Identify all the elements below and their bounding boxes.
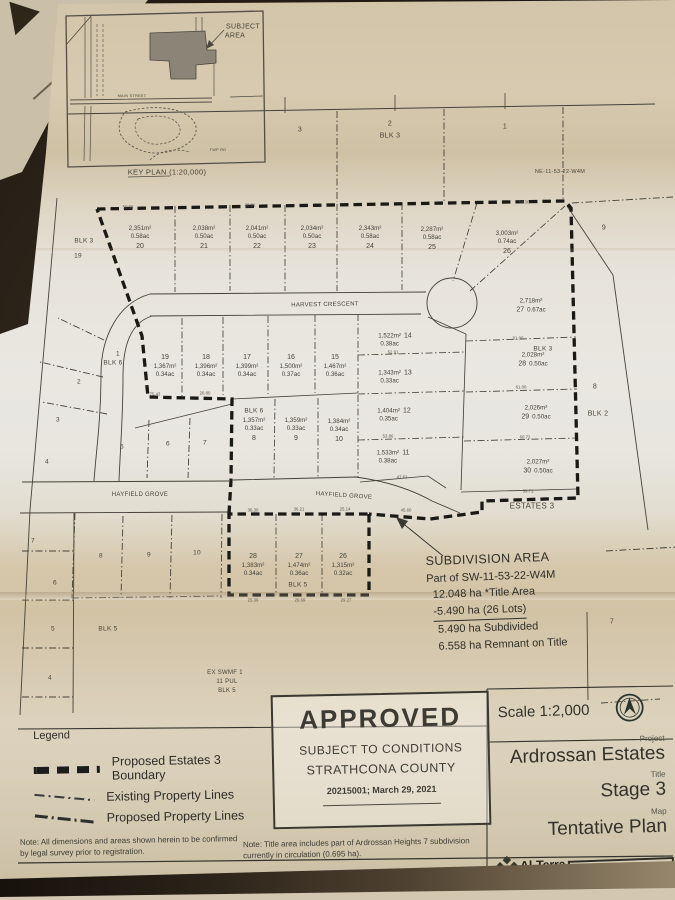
stage-title: Stage 3 [600, 779, 666, 803]
lot-label: 17 1,399m² 0.34ac [236, 353, 259, 379]
map-text: 6 [53, 580, 57, 587]
proposed-lot-lines [175, 203, 578, 595]
lot-label: 26 1,315m² 0.32ac [332, 552, 355, 578]
lot-acres: 0.34ac [244, 570, 263, 578]
lot-acres: 0.58ac [361, 233, 380, 241]
map-label: Map [651, 807, 667, 816]
map-text: MAIN STREET [118, 94, 147, 98]
lot-label: 15 1,467m² 0.36ac [324, 353, 347, 379]
lot-number: 15 [331, 353, 339, 362]
map-text: 3 [298, 127, 302, 134]
legend-title: Legend [33, 726, 263, 742]
map-text: BLK 6 [244, 408, 263, 415]
lot-acres: 0.50ac [195, 233, 214, 241]
lot-acres: 0.50ac [529, 360, 548, 368]
lot-acres: 0.67ac [527, 306, 546, 314]
project-name: Ardrossan Estates [509, 743, 665, 769]
survey-note: Note: All dimensions and areas shown her… [20, 834, 240, 859]
lot-acres: 0.38ac [377, 458, 400, 466]
proposed-boundary-line [97, 201, 578, 595]
lot-label: 27 2,718m² 0.67ac [516, 297, 545, 314]
lot-acres: 0.33ac [245, 425, 264, 433]
dimension-label: 45.60 [401, 508, 412, 513]
lot-area: 1,474m² [288, 562, 311, 570]
map-text: 4 [45, 459, 49, 466]
map-text: AREA [225, 33, 245, 40]
leader-arrow [396, 517, 443, 556]
lot-area: 2,027m² [523, 458, 552, 466]
lot-number: 9 [294, 434, 298, 443]
map-text: 8 [99, 553, 103, 560]
dimension-label: 36.21 [294, 507, 305, 512]
map-text: BLK 5 [288, 582, 307, 589]
dimension-label: 36.30 [248, 508, 259, 513]
lot-acres: 0.34ac [330, 426, 349, 434]
key-plan-linework [66, 11, 265, 177]
north-arrow-icon [613, 691, 646, 724]
map-text: 8 [593, 384, 597, 391]
lot-area: 2,287m² [421, 226, 444, 234]
dimension-label: 59.71 [523, 489, 534, 494]
lot-area: 2,028m² [518, 351, 547, 359]
subdivision-area-note: SUBDIVISION AREA Part of SW-11-53-22-W4M… [425, 544, 666, 655]
lot-area: 1,357m² [243, 417, 266, 425]
dimension-label: 52.91 [388, 350, 399, 355]
lot-number: 11 [402, 448, 409, 457]
lot-label: 28 2,028m² 0.50ac [518, 351, 547, 368]
lot-acres: 0.50ac [303, 233, 322, 241]
dimension-label: 61.00 [513, 336, 524, 341]
stamp-county-text: STRATHCONA COUNTY [306, 760, 456, 777]
lot-acres: 0.34ac [197, 371, 216, 379]
lot-acres: 0.34ac [156, 371, 175, 379]
dimension-label: 47.62 [397, 475, 408, 480]
lot-acres: 0.38ac [378, 341, 401, 349]
legend-item: Proposed Property Lines [35, 808, 265, 826]
lot-area: 2,038m² [193, 225, 216, 233]
lot-area: 3,003m² [496, 230, 519, 238]
map-text: 1 [116, 351, 120, 358]
lot-acres: 0.35ac [377, 416, 400, 424]
lot-acres: 0.32ac [334, 570, 353, 578]
map-text: 19 [74, 253, 82, 260]
legend-items: Proposed Estates 3 Boundary Existing Pro… [34, 752, 265, 826]
map-text: 5 [51, 626, 55, 633]
lot-label: 29 2,026m² 0.50ac [521, 404, 550, 421]
lot-number: 27 [295, 552, 303, 561]
legend-line-symbol [34, 794, 94, 801]
lot-number: 14 [404, 331, 412, 340]
lot-area: 2,718m² [516, 297, 545, 305]
map-text: 7 [31, 538, 35, 545]
lot-label: 12 1,404m² 0.35ac [377, 406, 411, 423]
lot-area: 1,315m² [332, 562, 355, 570]
lot-area: 2,026m² [521, 404, 550, 412]
lot-acres: 0.33ac [378, 378, 401, 386]
lot-label: 19 1,367m² 0.34ac [154, 353, 177, 379]
dimension-label: 61.00 [516, 385, 527, 390]
lot-acres: 0.50ac [534, 467, 553, 475]
lot-number: 19 [161, 353, 169, 362]
lot-label: 10 1,384m² 0.34ac [328, 418, 351, 444]
lot-number: 12 [403, 406, 411, 415]
map-text: HAYFIELD GROVE [112, 492, 168, 498]
lot-area: 1,404m² [377, 407, 400, 415]
stamp-conditions-text: SUBJECT TO CONDITIONS [299, 740, 462, 757]
map-text: 9 [602, 225, 606, 232]
lot-number: 28 [518, 359, 526, 368]
lot-label: 28 1,383m² 0.34ac [242, 552, 265, 578]
map-text: NE-11-53-22-W4M [535, 169, 585, 175]
map-text: 6 [166, 441, 170, 448]
lot-number: 26 [339, 552, 347, 561]
dimension-label: 54.36 [519, 200, 530, 205]
lot-area: 1,533m² [377, 449, 400, 457]
title-area-note: Note: Title area includes part of Ardros… [243, 836, 495, 862]
lot-acres: 0.37ac [282, 371, 301, 379]
lot-label: 14 1,522m² 0.38ac [378, 331, 412, 348]
lot-number: 17 [243, 353, 251, 362]
stamp-signature-line [323, 803, 441, 806]
map-text: 9 [147, 552, 151, 559]
map-type: Tentative Plan [547, 816, 667, 841]
map-text: EX SWMF 1 [207, 670, 243, 676]
map-text: 7 [203, 440, 207, 447]
map-text: BLK 3 [380, 133, 401, 140]
lot-number: 10 [335, 435, 343, 444]
lot-area: 2,351m² [129, 225, 152, 233]
lot-area: 2,034m² [301, 225, 324, 233]
legend-item-label: Proposed Estates 3 Boundary [112, 752, 264, 783]
lot-number: 28 [249, 552, 257, 561]
map-text: BLK 3 [74, 238, 93, 245]
lot-acres: 0.34ac [238, 371, 257, 379]
lot-acres: 0.50ac [532, 413, 551, 421]
lot-acres: 0.58ac [131, 233, 150, 241]
lot-number: 30 [523, 466, 531, 475]
lot-area: 2,343m² [359, 225, 382, 233]
lot-area: 1,383m² [242, 562, 265, 570]
map-text: KEY PLAN (1:20,000) [128, 168, 207, 177]
lot-label: 13 1,343m² 0.33ac [378, 368, 412, 385]
lot-acres: 0.58ac [423, 234, 442, 242]
lot-number: 29 [521, 412, 529, 421]
lot-area: 2,041m² [246, 225, 269, 233]
lot-area: 1,384m² [328, 418, 351, 426]
map-text: BLK 6 [103, 360, 122, 367]
legend-line-symbol [35, 814, 95, 823]
lot-area: 1,359m² [285, 417, 308, 425]
dimension-label: 38.01 [245, 203, 256, 208]
lot-label: 18 1,396m² 0.34ac [195, 353, 218, 379]
paper-sheet: SUBJECTAREAKEY PLAN (1:20,000)MAIN STREE… [0, 0, 675, 900]
scale-label: Scale 1:2,000 [498, 702, 590, 722]
dimension-label: 26.80 [200, 391, 211, 396]
map-text: 3 [56, 417, 60, 424]
lot-label: 27 1,474m² 0.36ac [288, 552, 311, 578]
street-lines [20, 278, 477, 513]
map-text: 1 [503, 124, 507, 131]
stamp-approved-text: APPROVED [299, 701, 462, 735]
lot-acres: 0.74ac [498, 238, 517, 246]
lot-label: 9 1,359m² 0.33ac [285, 417, 308, 443]
map-text: SUBJECT [226, 24, 260, 31]
lot-acres: 0.50ac [248, 233, 267, 241]
lot-acres: 0.36ac [290, 570, 309, 578]
dimension-label: 60.72 [520, 435, 531, 440]
map-text: 4 [48, 675, 52, 682]
legend-item: Existing Property Lines [34, 787, 264, 805]
lot-label: 11 1,533m² 0.38ac [377, 448, 410, 465]
approved-stamp: APPROVED SUBJECT TO CONDITIONS STRATHCON… [271, 691, 492, 830]
map-text: BLK 5 [98, 626, 117, 633]
lot-number: 8 [252, 434, 256, 443]
lot-area: 1,367m² [154, 363, 177, 371]
legend-item-label: Proposed Property Lines [107, 808, 245, 824]
map-text: HARVEST CRESCENT [291, 301, 359, 308]
legend: Legend Proposed Estates 3 Boundary Exist… [33, 726, 265, 833]
map-text: BLK 5 [218, 688, 236, 694]
lot-acres: 0.33ac [287, 425, 306, 433]
lot-area: 1,522m² [378, 332, 401, 340]
lot-number: 27 [516, 305, 524, 314]
dimension-label: 50.58 [123, 205, 134, 210]
lot-area: 1,396m² [195, 363, 218, 371]
paper-crease [0, 248, 675, 253]
map-text: BLK 3 [533, 346, 552, 353]
lot-area: 1,399m² [236, 363, 259, 371]
map-text: HAYFIELD GROVE [316, 491, 373, 501]
background-sheet-drawing [0, 2, 40, 40]
map-text: TWP RD [210, 148, 227, 152]
map-text: ESTATES 3 [510, 502, 555, 511]
dimension-label: 25.14 [340, 507, 351, 512]
lot-number: 18 [202, 353, 210, 362]
lot-label: 16 1,500m² 0.37ac [280, 353, 303, 379]
dimension-label: 75.43 [150, 392, 161, 397]
map-text: 2 [388, 121, 392, 128]
title-label: Title [651, 770, 666, 779]
lot-number: 16 [287, 353, 295, 362]
map-text: BLK 2 [588, 411, 609, 418]
lot-acres: 0.36ac [326, 371, 345, 379]
map-text: 10 [193, 550, 201, 557]
lot-label: 30 2,027m² 0.50ac [523, 458, 552, 475]
map-text: 5 [120, 444, 124, 451]
lot-label: 8 1,357m² 0.33ac [243, 417, 266, 443]
legend-line-symbol [34, 765, 100, 773]
lot-area: 1,343m² [378, 369, 401, 377]
legend-item: Proposed Estates 3 Boundary [34, 752, 264, 784]
lot-number: 13 [404, 368, 412, 377]
map-text: 11 PUL [216, 679, 237, 685]
legend-item-label: Existing Property Lines [106, 788, 234, 804]
lot-area: 1,467m² [324, 363, 347, 371]
map-text: 2 [77, 379, 81, 386]
dimension-label: 53.86 [383, 434, 394, 439]
stamp-file-date: 20215001; March 29, 2021 [327, 784, 437, 796]
lot-area: 1,500m² [280, 363, 303, 371]
